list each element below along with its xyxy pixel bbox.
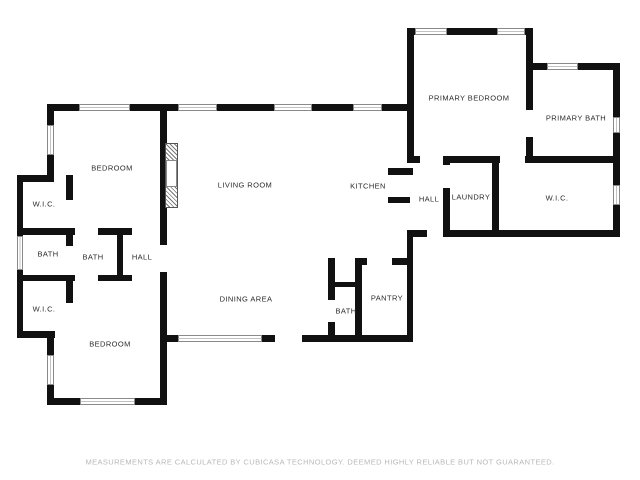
room-label-bath-middle: BATH (82, 253, 103, 262)
wall-segment (98, 275, 132, 281)
window (178, 335, 262, 342)
window (80, 398, 135, 405)
room-label-bath-left: BATH (37, 250, 58, 259)
wall-segment (355, 258, 362, 342)
window (178, 104, 217, 111)
room-label-dining-area: DINING AREA (220, 295, 273, 304)
room-label-hall-right: HALL (419, 195, 439, 204)
window (353, 104, 382, 111)
wall-segment (160, 335, 178, 342)
room-label-bath-south: BATH (335, 307, 356, 316)
room-label-hall-left: HALL (132, 253, 152, 262)
wall-segment (217, 104, 274, 111)
wall-segment (525, 156, 620, 163)
wall-segment (328, 322, 335, 342)
window (613, 117, 620, 133)
wall-segment (328, 258, 335, 300)
wall-segment (388, 197, 410, 203)
wall-segment (98, 228, 132, 235)
wall-segment (130, 104, 178, 111)
wall-segment (407, 230, 413, 342)
window (274, 104, 312, 111)
wall-segment (66, 275, 73, 303)
window (79, 104, 130, 111)
wall-segment (66, 175, 73, 200)
wall-segment (492, 156, 499, 237)
wall-segment (47, 398, 80, 405)
wall-segment (613, 205, 620, 237)
room-label-bedroom-top: BEDROOM (91, 164, 133, 173)
window (497, 28, 525, 35)
room-label-wic-bottom-left: W.I.C. (33, 305, 56, 314)
wall-segment (613, 133, 620, 163)
wall-segment (312, 104, 353, 111)
disclaimer-text: MEASUREMENTS ARE CALCULATED BY CUBICASA … (85, 458, 554, 467)
wall-segment (262, 335, 275, 342)
wall-segment (117, 228, 123, 281)
room-label-primary-bedroom: PRIMARY BEDROOM (429, 94, 510, 103)
room-label-bedroom-bottom: BEDROOM (89, 340, 131, 349)
wall-segment (443, 230, 620, 237)
floor-plan: BEDROOM LIVING ROOM KITCHEN PRIMARY BEDR… (0, 0, 640, 480)
room-label-kitchen: KITCHEN (350, 182, 386, 191)
wall-segment (613, 63, 620, 117)
wall-segment (66, 228, 73, 246)
window (17, 236, 23, 270)
wall-segment (17, 175, 23, 236)
room-label-pantry: PANTRY (371, 294, 403, 303)
window (47, 355, 54, 385)
wall-segment (407, 28, 414, 163)
window (613, 185, 620, 205)
wall-segment (533, 63, 547, 70)
window (415, 28, 447, 35)
room-label-living-room: LIVING ROOM (218, 181, 272, 190)
room-label-wic-right: W.I.C. (546, 194, 569, 203)
window (547, 63, 578, 70)
wall-segment (408, 230, 427, 237)
wall-segment (388, 168, 413, 175)
wall-segment (392, 258, 408, 265)
wall-segment (443, 156, 450, 165)
wall-segment (526, 137, 533, 163)
room-label-wic-top-left: W.I.C. (33, 200, 56, 209)
wall-segment (526, 28, 533, 110)
room-label-laundry: LAUNDRY (452, 193, 491, 202)
wall-segment (47, 331, 54, 355)
wall-segment (47, 104, 54, 125)
window (47, 125, 54, 155)
wall-segment (443, 188, 450, 237)
room-label-primary-bath: PRIMARY BATH (546, 114, 606, 123)
fireplace-hearth (166, 160, 177, 187)
wall-segment (447, 28, 497, 35)
